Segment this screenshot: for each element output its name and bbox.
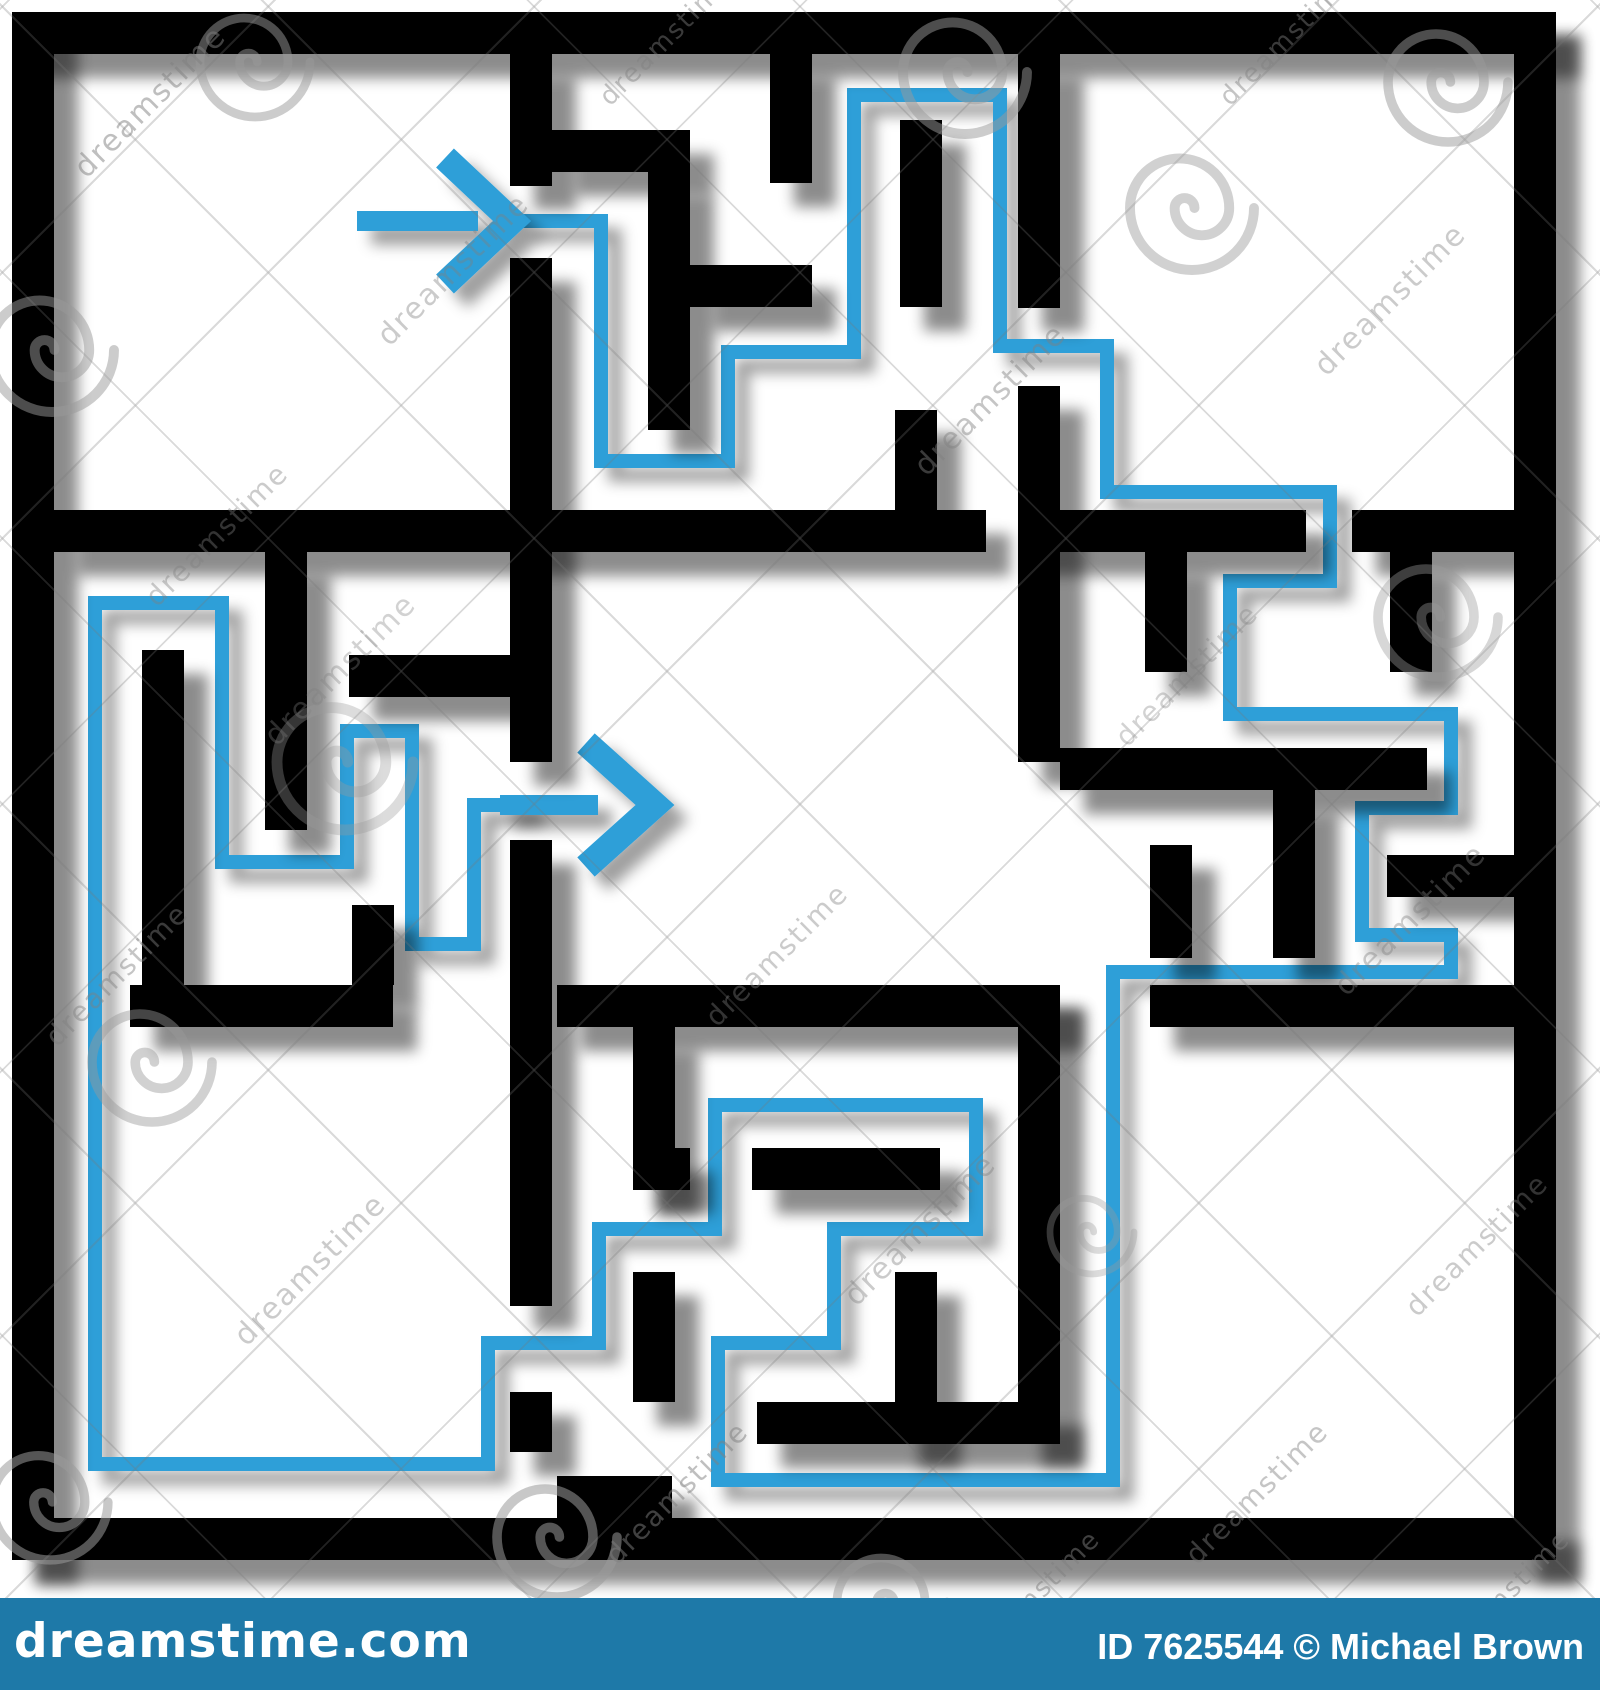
- maze-puzzle-image: dreamstimedreamstimedreamstimedreamstime…: [0, 0, 1600, 1690]
- footer-logo: dreamstime.com: [14, 1614, 472, 1669]
- solution-path: [95, 95, 1451, 1480]
- start-arrow-icon: [357, 158, 512, 284]
- maze-solution-svg: [0, 0, 1600, 1690]
- finish-arrow-icon: [500, 743, 655, 867]
- footer-credit-text: ID 7625544 © Michael Brown: [1097, 1626, 1584, 1668]
